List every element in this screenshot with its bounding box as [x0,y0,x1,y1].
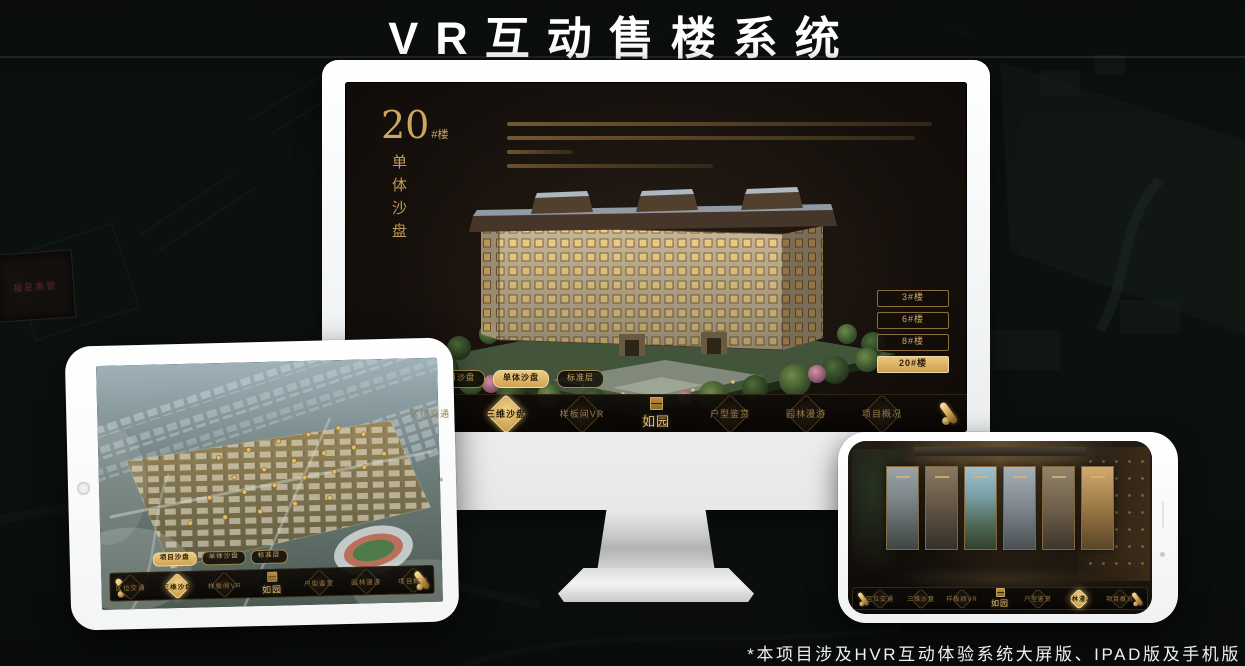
footnote: *本项目涉及HVR互动体验系统大屏版、IPAD版及手机版 [747,640,1241,665]
phone-device: 区位交通 三维沙盘 样板间VR 如园 户型鉴赏 园林漫游 项目概况 [838,432,1178,623]
nav-item-showroom-vr[interactable]: 样板间VR [550,395,614,432]
nav-item-showroom-vr[interactable]: 样板间VR [204,570,245,598]
seal-icon [650,397,663,410]
floor-selector: 3#楼 6#楼 8#楼 20#楼 [877,290,955,378]
scroll-icon[interactable] [941,400,955,426]
subtab-single-sandbox[interactable]: 单体沙盘 [493,370,549,388]
gallery-panel[interactable] [1003,466,1036,550]
subtab-project-sandbox[interactable]: 项目沙盘 [153,552,197,567]
nav-item-garden-tour[interactable]: 园林漫游 [346,567,387,595]
gallery-panel[interactable] [1042,466,1075,550]
nav-item-unit-plans[interactable]: 户型鉴赏 [299,568,340,596]
brand-logo: 如园 [985,588,1015,609]
scene-gallery [886,466,1114,550]
nav-item-sandbox[interactable]: 三维沙盘 [903,588,939,609]
nav-item-location[interactable]: 区位交通 [110,573,151,601]
subtab-standard-floor[interactable]: 标准层 [557,370,604,388]
subtab-standard-floor[interactable]: 标准层 [251,549,288,564]
home-button[interactable] [77,482,90,495]
speaker-slot [1162,501,1164,529]
plaque-text: 福星惠誉 [13,278,58,294]
background-plaque: 福星惠誉 [0,249,76,322]
ceiling-beam [914,447,1086,456]
seal-icon [267,571,277,581]
subtab-single-sandbox[interactable]: 单体沙盘 [202,550,246,565]
nav-item-garden-tour[interactable]: 园林漫游 [774,395,838,432]
nav-item-sandbox[interactable]: 三维沙盘 [157,572,198,600]
gallery-panel[interactable] [964,466,997,550]
tablet-device: 项目沙盘 单体沙盘 标准层 区位交通 三维沙盘 样板间VR 如园 户型鉴赏 园林… [65,337,460,630]
floor-button-8[interactable]: 8#楼 [877,334,949,351]
nav-item-showroom-vr[interactable]: 样板间VR [944,588,980,609]
monitor-stand-neck [597,510,715,572]
poster: 福星惠誉 VR互动售楼系统 20#楼 单体沙盘 [0,0,1245,666]
monitor-stand-base [558,568,754,602]
camera-icon [1160,552,1165,557]
nav-item-sandbox[interactable]: 三维沙盘 [474,395,538,432]
brand-logo: 如园 [626,397,686,430]
nav-item-garden-tour[interactable]: 园林漫游 [1061,588,1097,609]
tablet-screen: 项目沙盘 单体沙盘 标准层 区位交通 三维沙盘 样板间VR 如园 户型鉴赏 园林… [96,358,443,610]
phone-navbar: 区位交通 三维沙盘 样板间VR 如园 户型鉴赏 园林漫游 项目概况 [852,587,1148,610]
gallery-panel[interactable] [886,466,919,550]
floor-button-3[interactable]: 3#楼 [877,290,949,307]
gallery-panel[interactable] [925,466,958,550]
nav-item-project-overview[interactable]: 项目概况 [850,395,914,432]
seal-icon [996,588,1005,597]
gallery-panel[interactable] [1081,466,1114,550]
nav-item-unit-plans[interactable]: 户型鉴赏 [1020,588,1056,609]
brand-logo: 如园 [252,571,293,596]
floor-button-6[interactable]: 6#楼 [877,312,949,329]
nav-item-unit-plans[interactable]: 户型鉴赏 [698,395,762,432]
phone-screen: 区位交通 三维沙盘 样板间VR 如园 户型鉴赏 园林漫游 项目概况 [848,441,1152,614]
page-title: VR互动售楼系统 [0,2,1245,67]
floor-button-20[interactable]: 20#楼 [877,356,949,373]
nav-item-location[interactable]: 区位交通 [862,588,898,609]
desktop-subtabs: 项目沙盘 单体沙盘 标准层 [429,370,604,388]
